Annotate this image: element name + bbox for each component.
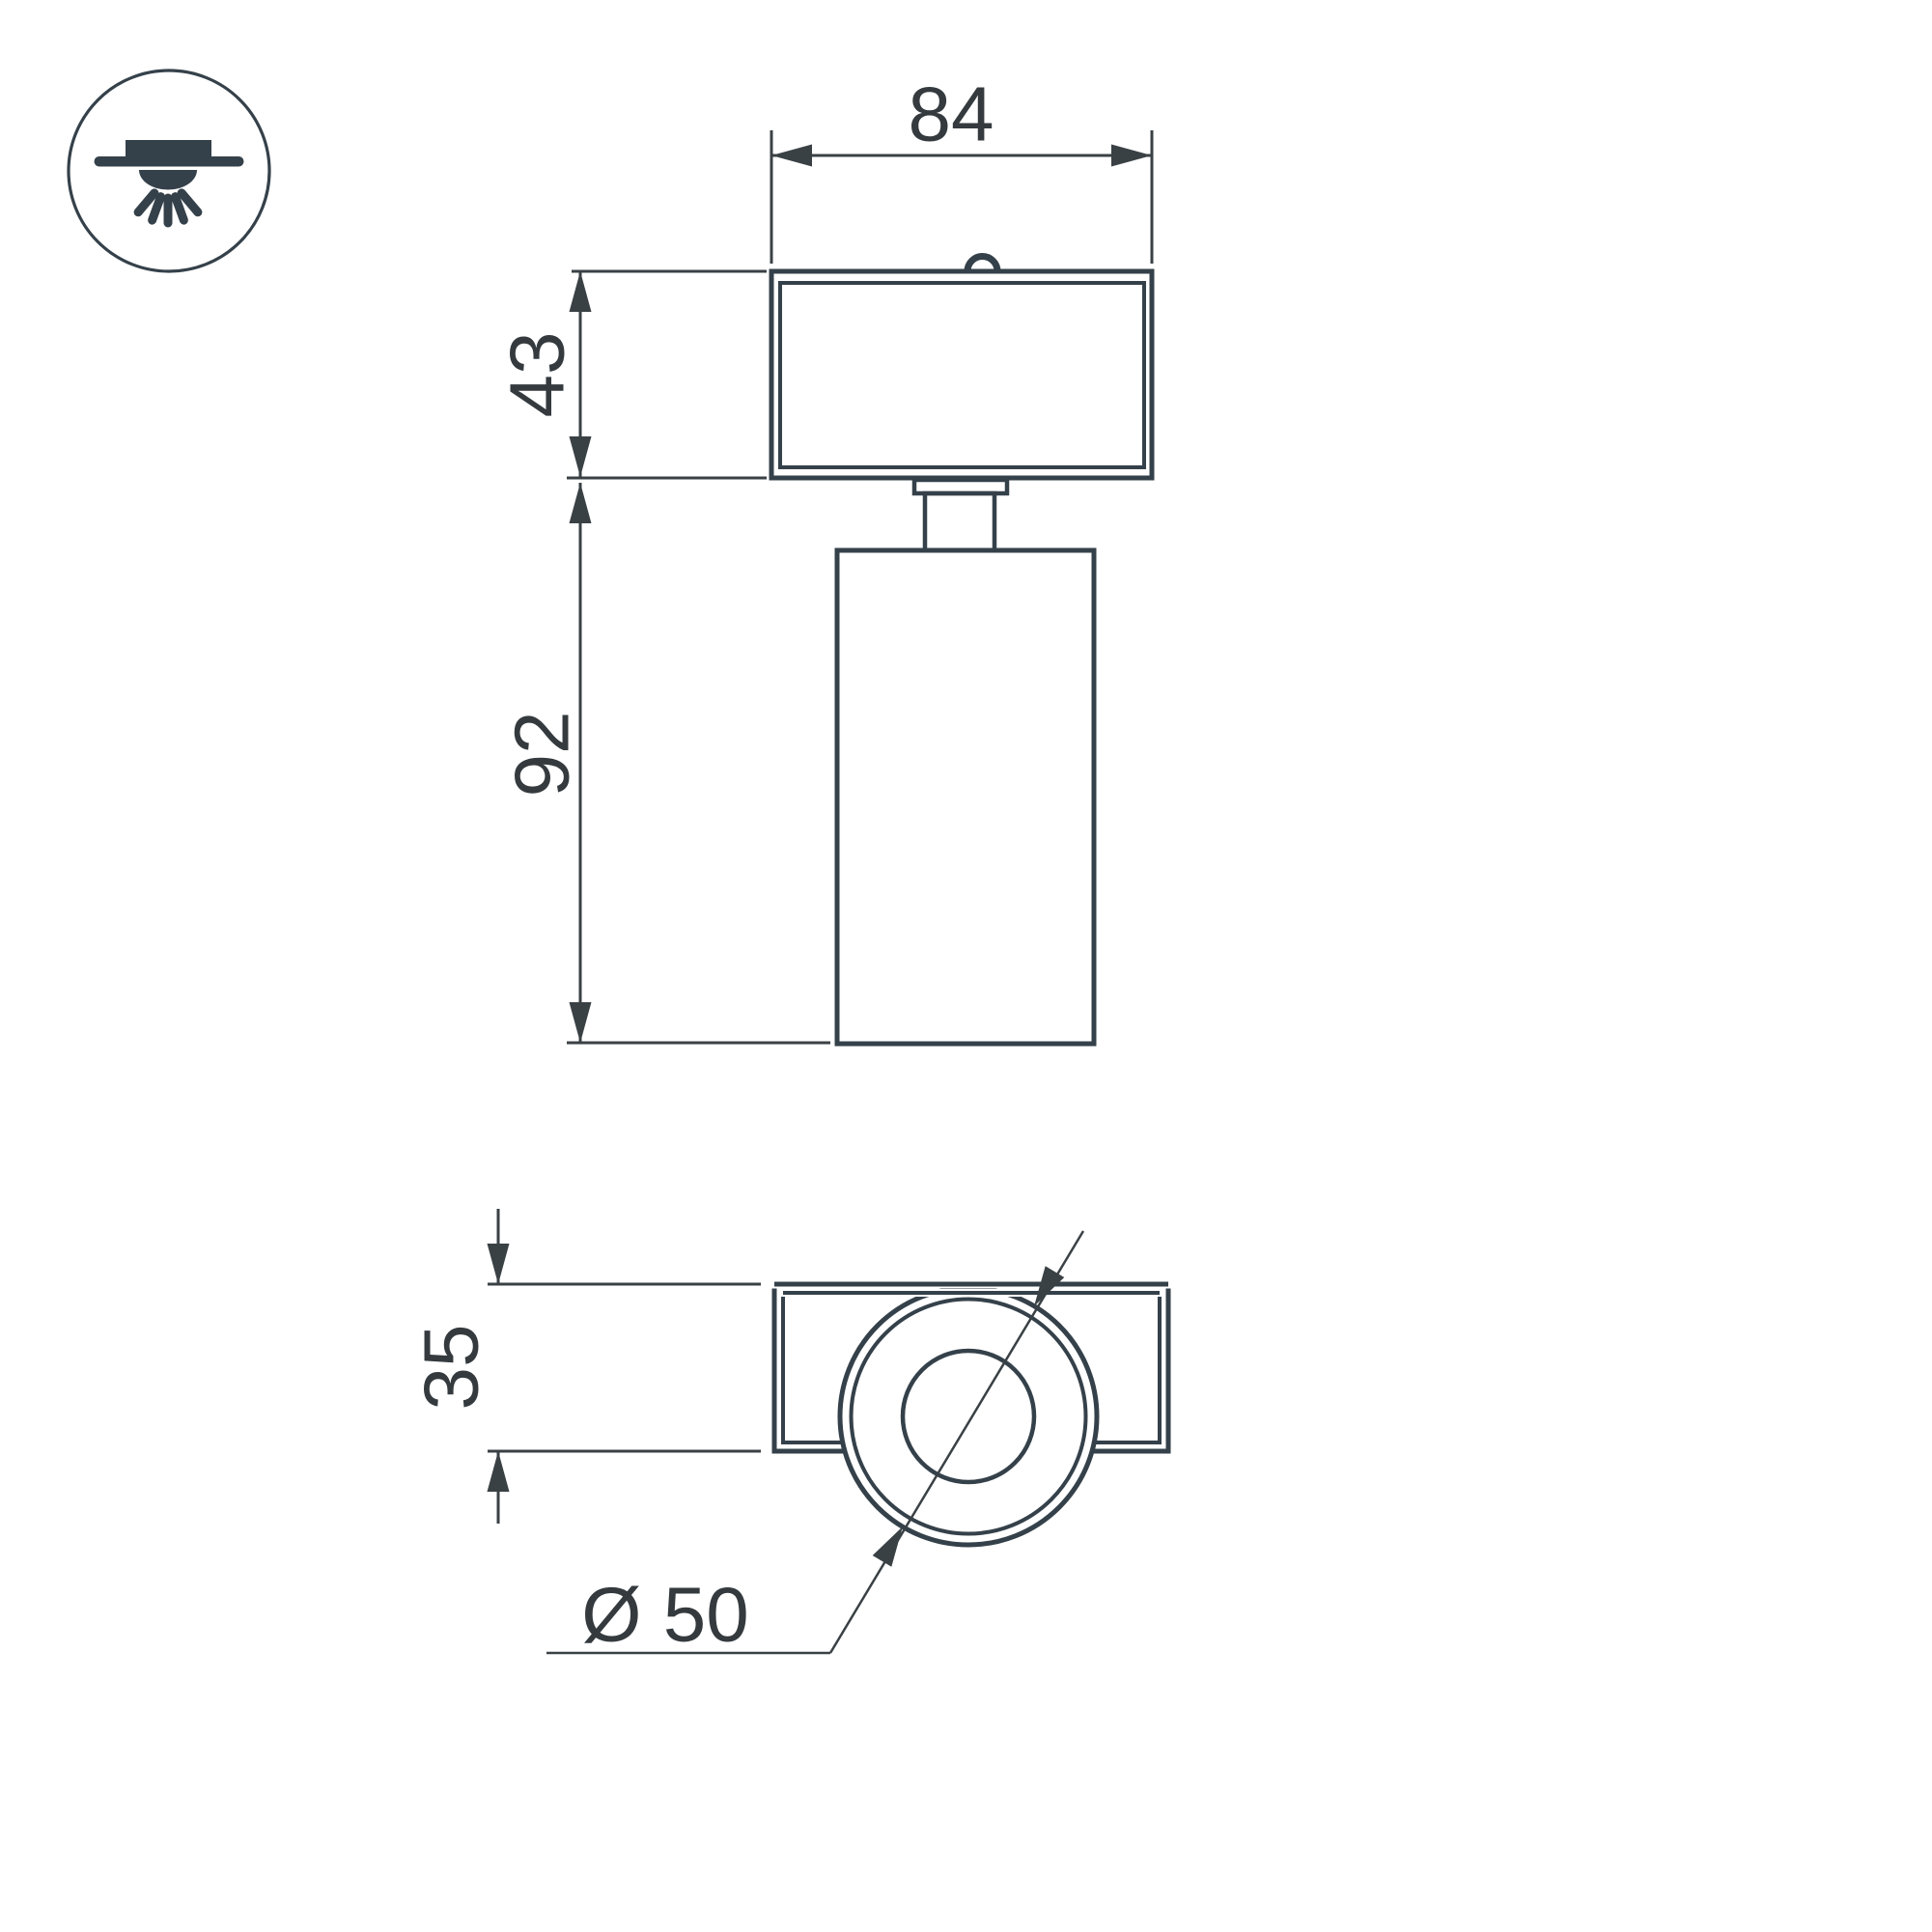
technical-drawing: 84 43 92 bbox=[0, 0, 1932, 1932]
arrowhead-icon bbox=[1111, 145, 1152, 167]
dim-base-height-label: 43 bbox=[494, 332, 580, 418]
icon-light-rays bbox=[138, 193, 198, 223]
icon-ceiling-line bbox=[95, 156, 244, 167]
dim-diameter-label: Ø 50 bbox=[581, 1572, 748, 1658]
front-view: 84 43 92 bbox=[494, 71, 1153, 1045]
arrowhead-icon bbox=[570, 271, 592, 312]
dim-base-depth-label: 35 bbox=[408, 1325, 494, 1411]
dim-base-height-43: 43 bbox=[494, 271, 768, 478]
arrowhead-icon bbox=[488, 1244, 510, 1284]
dim-base-depth-35: 35 bbox=[408, 1209, 762, 1524]
lamp-body-circle-outer bbox=[840, 1288, 1097, 1545]
bottom-view: 35 Ø 50 bbox=[408, 1209, 1174, 1658]
arrowhead-icon bbox=[771, 145, 812, 167]
arrowhead-icon bbox=[570, 483, 592, 523]
lamp-body-outline bbox=[837, 550, 1094, 1044]
arrowhead-icon bbox=[570, 436, 592, 477]
icon-lamp-dome bbox=[139, 170, 197, 189]
arrowhead-icon bbox=[570, 1002, 592, 1043]
dim-width-84: 84 bbox=[771, 71, 1152, 265]
arrowhead-icon bbox=[488, 1451, 510, 1492]
arrowhead-icon bbox=[873, 1526, 903, 1567]
mount-base-outline bbox=[771, 271, 1152, 478]
mount-base-inner-line bbox=[780, 283, 1144, 467]
dim-body-height-92: 92 bbox=[499, 483, 831, 1043]
dim-width-label: 84 bbox=[909, 71, 994, 157]
swivel-neck bbox=[925, 493, 994, 550]
dim-body-height-label: 92 bbox=[499, 712, 585, 798]
mount-type-icon bbox=[69, 70, 269, 271]
